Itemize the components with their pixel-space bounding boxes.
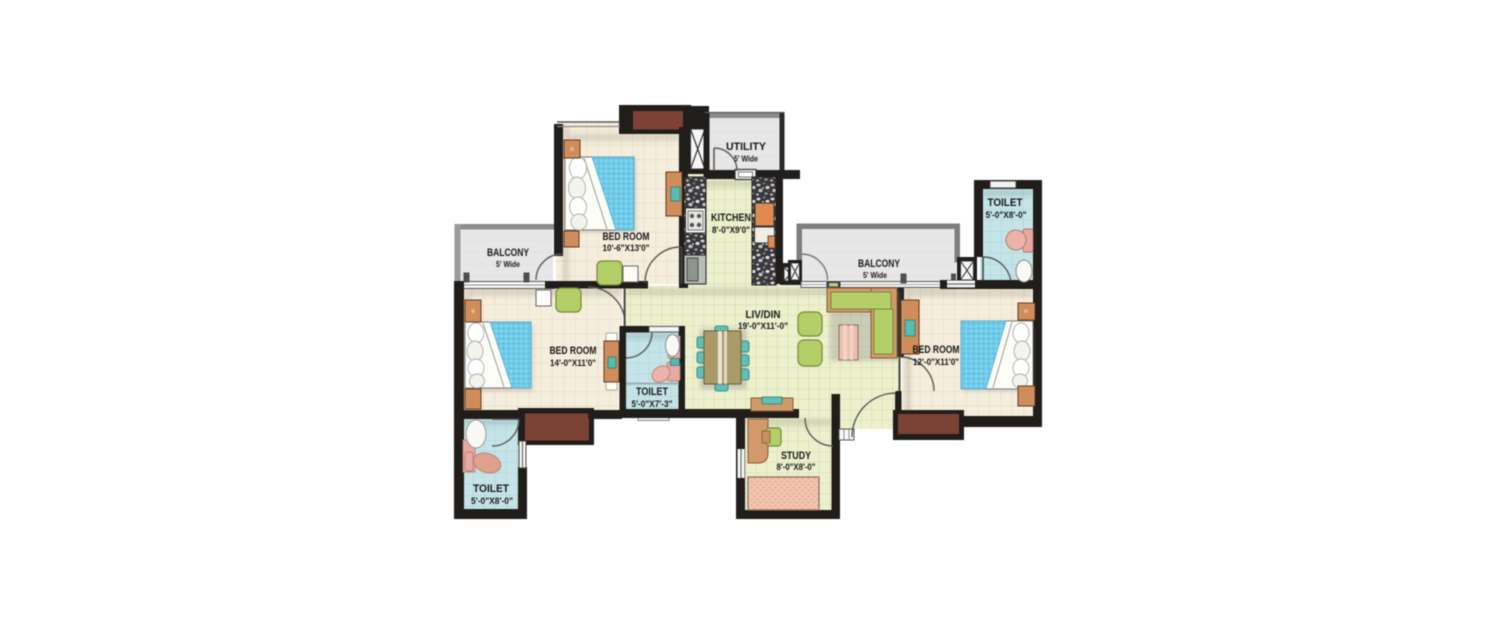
- svg-text:10'-6"X13'0": 10'-6"X13'0": [603, 243, 650, 254]
- svg-text:5'-0"X7'-3": 5'-0"X7'-3": [632, 399, 673, 410]
- svg-text:5'-0"X8'-0": 5'-0"X8'-0": [986, 210, 1027, 221]
- svg-text:5' Wide: 5' Wide: [734, 154, 758, 164]
- svg-text:14'-0"X11'0": 14'-0"X11'0": [550, 358, 596, 369]
- svg-text:STUDY: STUDY: [781, 450, 812, 462]
- svg-text:12'-0"X11'0": 12'-0"X11'0": [913, 357, 959, 368]
- svg-text:BED ROOM: BED ROOM: [550, 345, 597, 357]
- svg-text:TOILET: TOILET: [636, 386, 668, 398]
- svg-text:8'-0"X8'-0": 8'-0"X8'-0": [777, 462, 816, 473]
- svg-text:5' Wide: 5' Wide: [863, 270, 887, 280]
- svg-text:5' Wide: 5' Wide: [496, 259, 520, 269]
- svg-text:TOILET: TOILET: [988, 197, 1023, 209]
- svg-text:UTILITY: UTILITY: [726, 141, 767, 153]
- svg-text:BALCONY: BALCONY: [858, 258, 901, 270]
- svg-text:BALCONY: BALCONY: [487, 247, 530, 259]
- svg-text:KITCHEN: KITCHEN: [711, 212, 751, 224]
- svg-text:BED ROOM: BED ROOM: [913, 344, 960, 356]
- svg-text:19'-0"X11'-0": 19'-0"X11'-0": [738, 321, 788, 332]
- svg-text:LIV/DIN: LIV/DIN: [746, 309, 781, 321]
- svg-text:8'-0"X9'0": 8'-0"X9'0": [712, 225, 750, 236]
- svg-text:TOILET: TOILET: [473, 483, 509, 495]
- svg-text:BED ROOM: BED ROOM: [603, 231, 650, 243]
- svg-text:5'-0"X8'-0": 5'-0"X8'-0": [471, 496, 513, 507]
